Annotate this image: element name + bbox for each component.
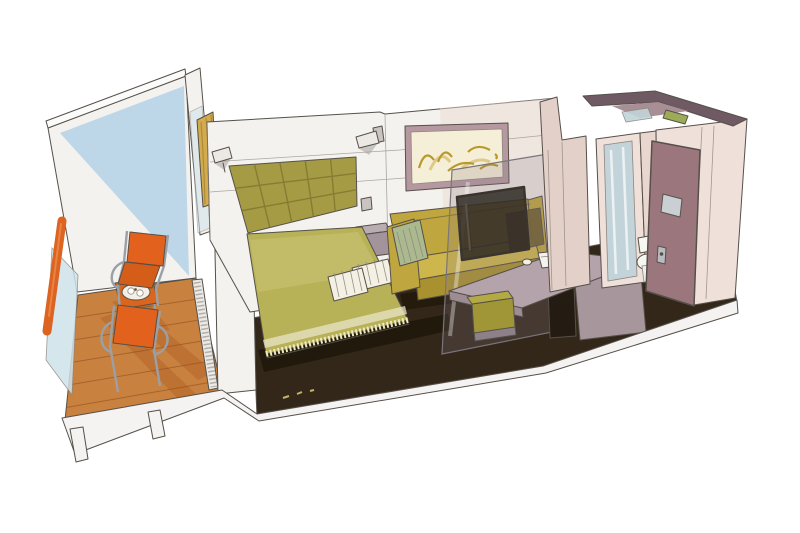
door-handle	[660, 252, 664, 256]
door-leaf	[646, 141, 700, 306]
chair-back-far	[127, 232, 166, 266]
cabin-cutaway-illustration	[0, 0, 800, 533]
coffee-cup-2	[137, 290, 143, 296]
shower-glass	[604, 141, 637, 281]
coffee-dot	[134, 288, 137, 291]
chair-back-near	[113, 305, 158, 348]
desk-stool	[467, 291, 516, 341]
coffee-cup-1	[128, 288, 134, 294]
desk-cup	[523, 259, 532, 265]
bathroom	[540, 91, 747, 306]
chair-seat-far	[118, 262, 160, 288]
bathroom-door	[646, 141, 700, 306]
towel	[663, 110, 688, 124]
light-switch	[361, 197, 372, 211]
illustration-canvas: Cruise ship balcony cabin - watercolor c…	[0, 0, 800, 533]
